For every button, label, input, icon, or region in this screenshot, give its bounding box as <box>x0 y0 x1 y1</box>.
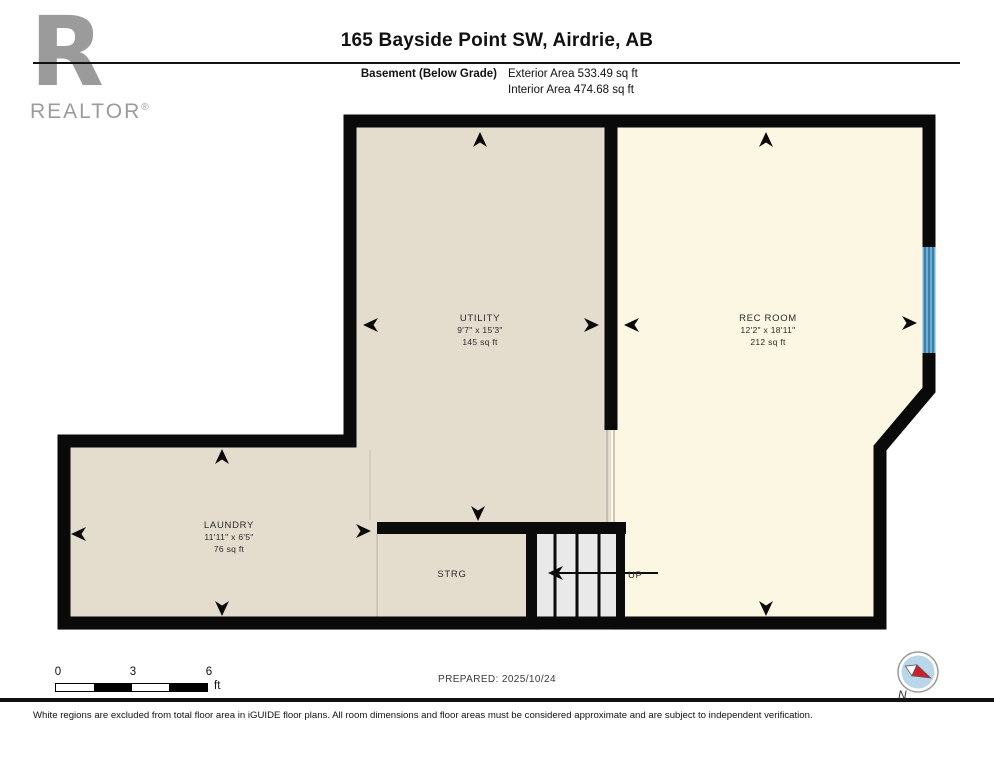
strg-label: STRG <box>437 569 466 580</box>
floorplan-drawing: UTILITY 9'7" x 15'3" 145 sq ft REC ROOM … <box>0 0 994 768</box>
scale-segment <box>56 684 94 691</box>
window <box>923 247 936 353</box>
compass-icon: N <box>892 650 942 702</box>
scale-segment <box>94 684 132 691</box>
scale-segment <box>169 684 207 691</box>
utility-dims: 9'7" x 15'3" <box>457 325 503 335</box>
floorplan-page: R REALTOR® 165 Bayside Point SW, Airdrie… <box>0 0 994 768</box>
recroom-area: 212 sq ft <box>750 337 786 347</box>
laundry-area: 76 sq ft <box>214 544 245 554</box>
utility-area: 145 sq ft <box>462 337 498 347</box>
scale-segment <box>132 684 170 691</box>
laundry-label: LAUNDRY <box>204 520 254 531</box>
up-label: UP <box>628 570 643 581</box>
footer-divider <box>0 698 994 702</box>
recroom-dims: 12'2" x 18'11" <box>741 325 796 335</box>
laundry-dims: 11'11" x 6'5" <box>204 532 253 542</box>
disclaimer-text: White regions are excluded from total fl… <box>33 710 973 721</box>
recroom-label: REC ROOM <box>739 313 797 324</box>
prepared-date: PREPARED: 2025/10/24 <box>0 674 994 685</box>
utility-label: UTILITY <box>460 313 500 324</box>
